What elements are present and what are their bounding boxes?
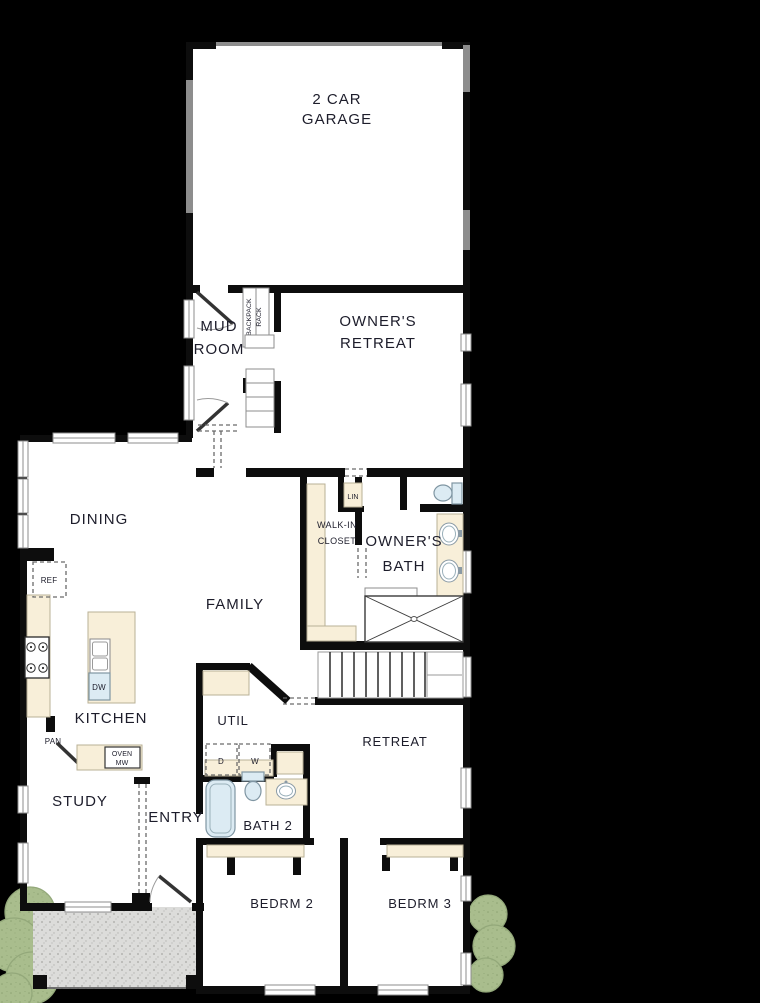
oven-label: OVEN (112, 751, 132, 758)
backpack-rack-label-line2: RACK (256, 307, 263, 327)
oven-microwave: OVEN MW (77, 745, 142, 770)
garage-label-line2: GARAGE (302, 111, 372, 128)
bathtub (206, 780, 235, 837)
garage-label-line1: 2 CAR (312, 91, 361, 108)
study-label: STUDY (52, 793, 108, 810)
shower (365, 588, 463, 642)
mud-room-label-line1: MUD (200, 318, 237, 335)
washer-label: W (251, 757, 259, 766)
island-sink (90, 639, 110, 673)
util-label: UTIL (217, 713, 248, 728)
dining-label: DINING (70, 511, 129, 528)
backpack-rack-label-line1: BACKPACK (246, 298, 253, 336)
mud-shelves (246, 369, 274, 427)
porch-post (33, 975, 47, 989)
refrigerator-label: REF (41, 576, 58, 585)
closet-shelf (307, 626, 356, 641)
microwave-label: MW (116, 760, 129, 767)
mud-bench (245, 335, 274, 348)
mud-room-label-line2: ROOM (194, 341, 245, 358)
entry-label: ENTRY (148, 809, 204, 826)
bedroom2-label: BEDRM 2 (250, 896, 313, 911)
porch (33, 907, 200, 989)
dishwasher-label: DW (92, 683, 106, 692)
floor-plan-page: 2 CAR GARAGE BACKPACK RACK MUD ROOM OWNE… (0, 0, 760, 1003)
floor-plan: 2 CAR GARAGE BACKPACK RACK MUD ROOM OWNE… (0, 0, 760, 1003)
owners-retreat-label-line1: OWNER'S (339, 313, 416, 330)
util-shelf (203, 671, 249, 695)
linen-closet: LIN (344, 483, 362, 507)
bedroom3-closet-shelf (387, 845, 463, 857)
closet-shelf (307, 484, 325, 641)
bush-right (469, 895, 515, 992)
owners-retreat-label-line2: RETREAT (340, 335, 416, 352)
owners-bath-label-line2: BATH (383, 558, 426, 575)
kitchen-island: DW (88, 612, 135, 703)
walk-in-closet-label-line1: WALK-IN (317, 520, 357, 530)
dryer-label: D (218, 757, 224, 766)
bedroom2-closet-shelf (207, 845, 304, 857)
family-label: FAMILY (206, 596, 264, 613)
bath2-label: BATH 2 (243, 818, 292, 833)
walk-in-closet-label-line2: CLOSET (318, 536, 357, 546)
cooktop (25, 637, 49, 678)
retreat-label: RETREAT (362, 734, 427, 749)
linen-label: LIN (347, 494, 358, 501)
kitchen-label: KITCHEN (75, 710, 148, 727)
garage-door (216, 42, 442, 46)
bedroom3-label: BEDRM 3 (388, 896, 451, 911)
owners-bath-label-line1: OWNER'S (365, 533, 442, 550)
dishwasher: DW (89, 673, 110, 700)
owners-bath-vanity (437, 514, 463, 598)
